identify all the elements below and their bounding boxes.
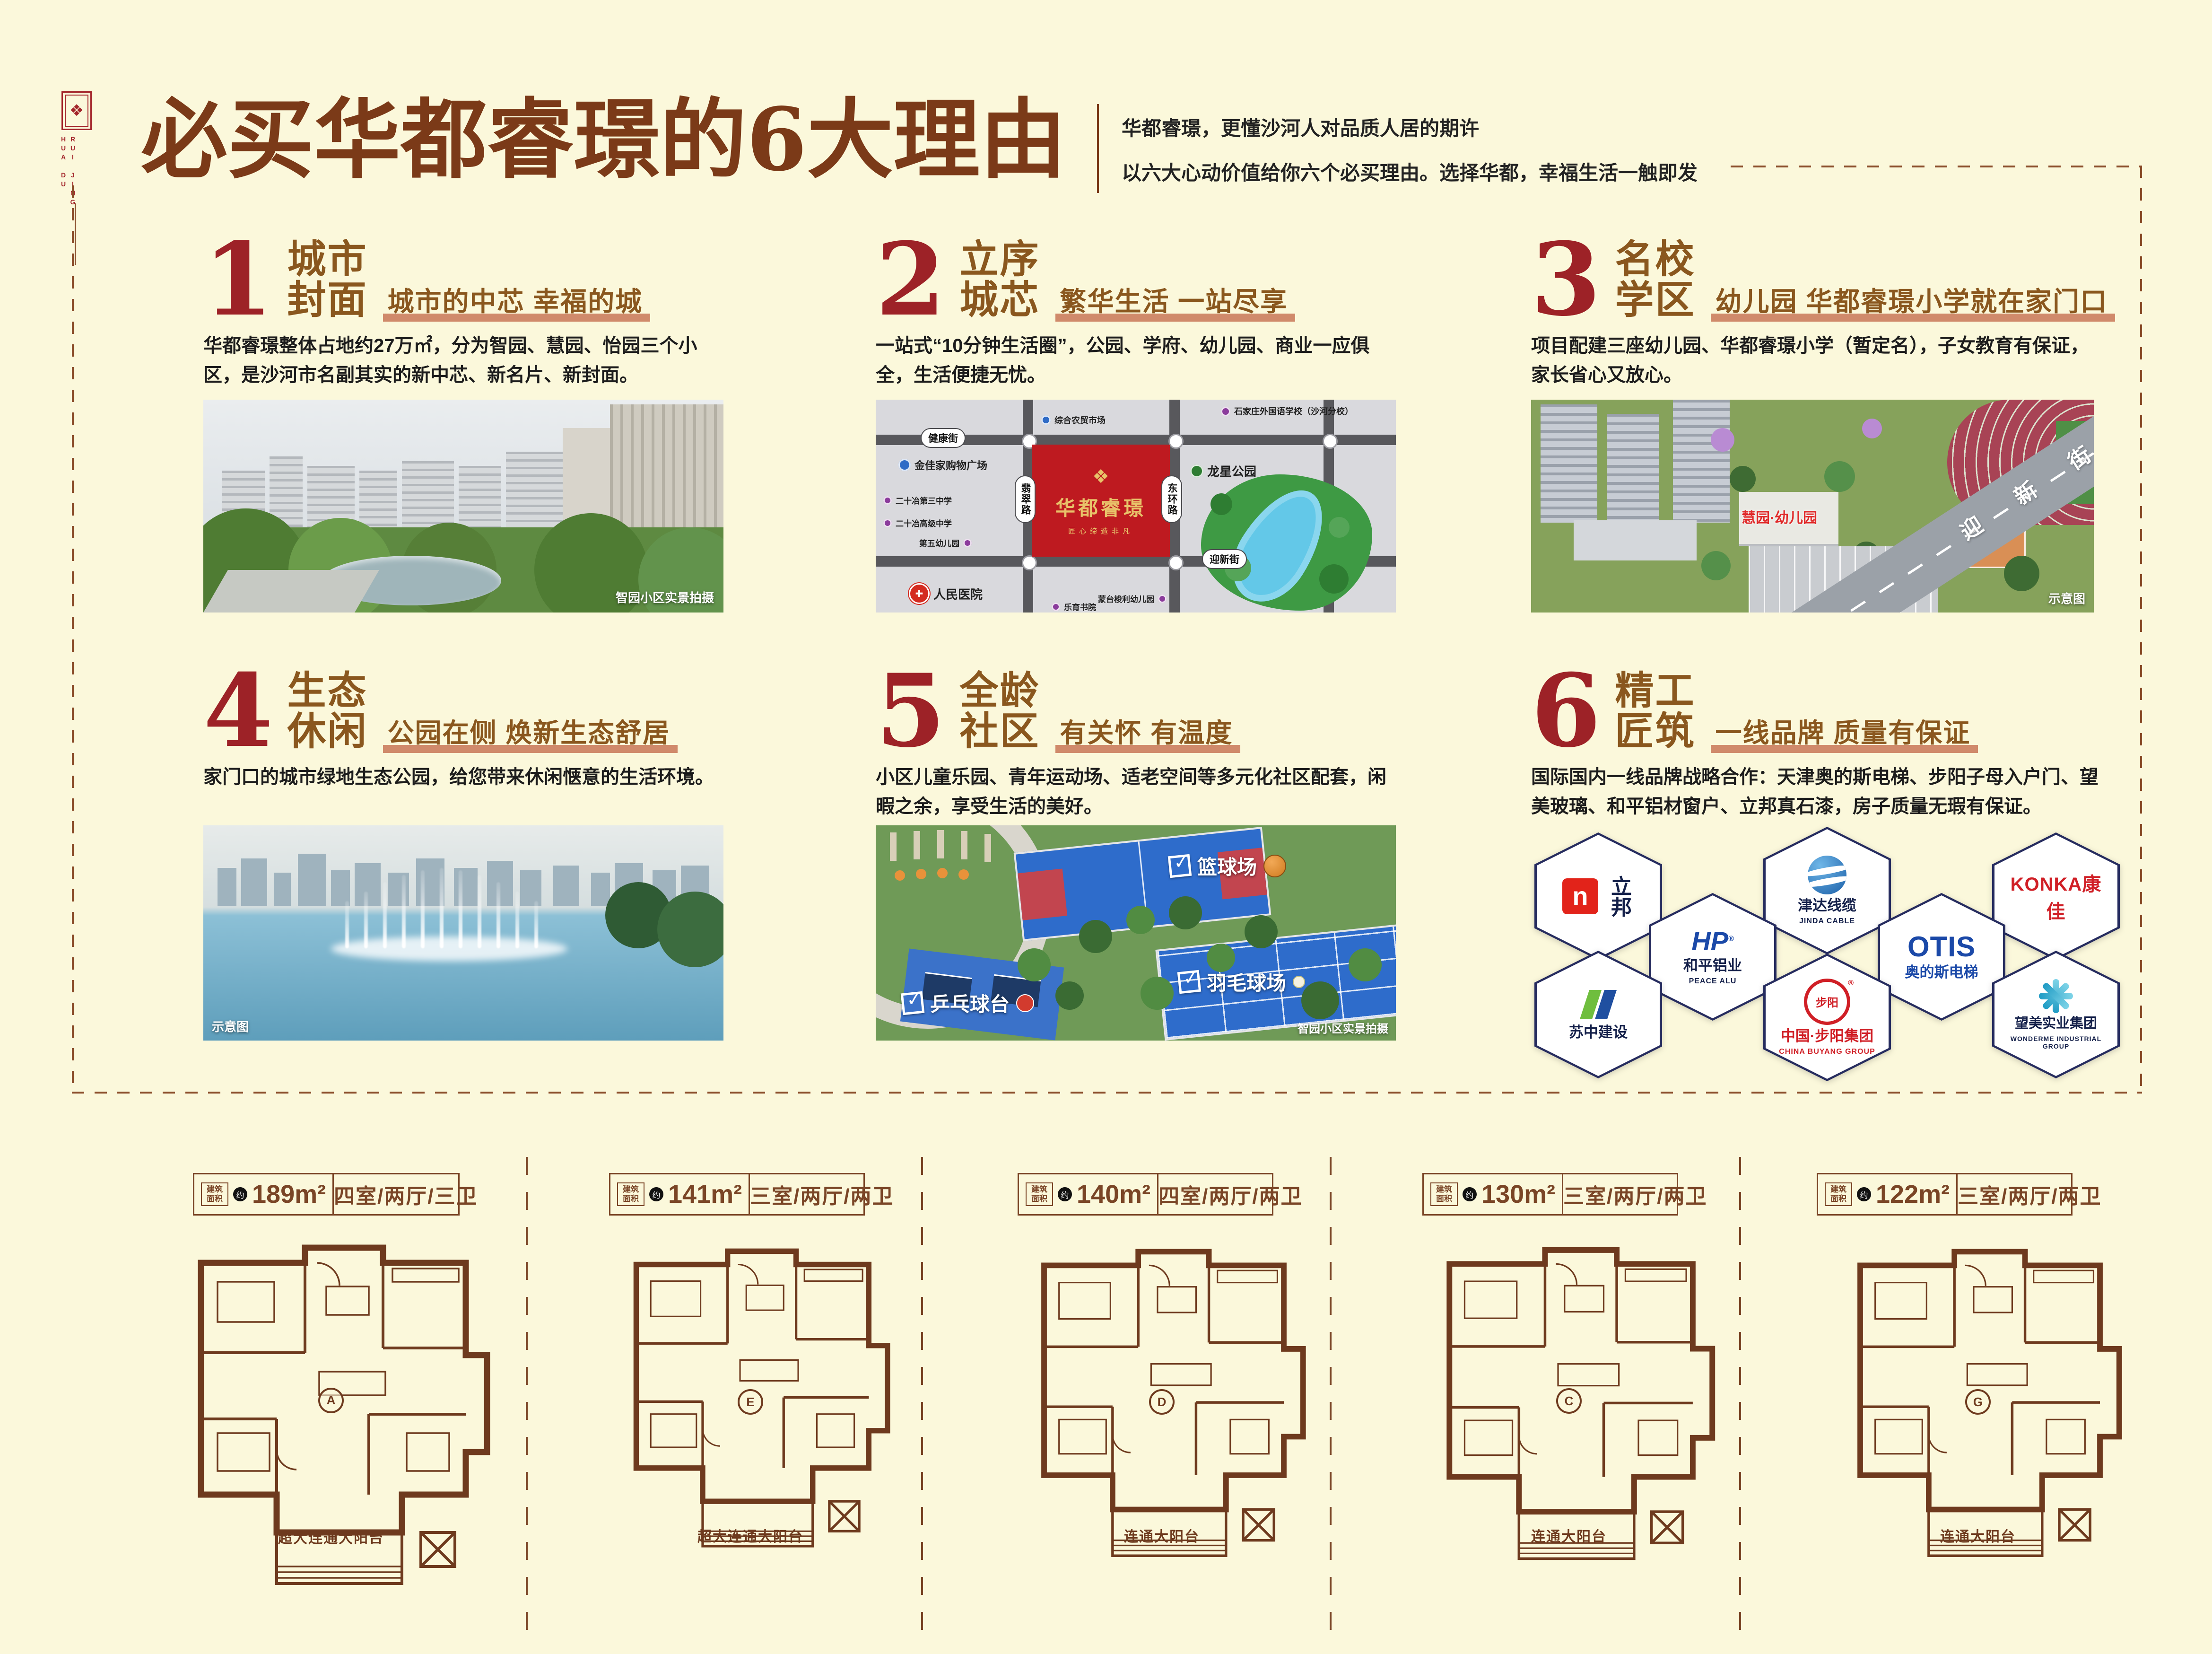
check-icon: ✓ xyxy=(901,991,925,1015)
floor-plan-4: C 连通大阳台 xyxy=(1408,1234,1730,1614)
sports-courts-image: ✓ 篮球场 ✓ 羽毛球场 ✓ 乒乓球台 智园小区实景拍摄 xyxy=(876,825,1396,1041)
poi-academy: 乐育书院 xyxy=(1052,601,1096,613)
plan-separator-1 xyxy=(526,1157,528,1634)
park-image-caption: 示意图 xyxy=(212,1017,249,1035)
section-1-tagline: 城市的中芯 幸福的城 xyxy=(386,280,645,321)
poi-hospital: ✚ 人民医院 xyxy=(909,583,983,604)
poi-shopping: 金佳家购物广场 xyxy=(898,457,987,473)
section-6-tagline: 一线品牌 质量有保证 xyxy=(1714,712,1973,752)
section-5-number: 5 xyxy=(876,670,946,752)
basketball-tag: ✓ 篮球场 xyxy=(1169,851,1286,880)
kindergarten-icon xyxy=(1158,595,1167,603)
hospital-cross-icon: ✚ xyxy=(909,583,930,604)
poi-middle-school-3: 二十冶第三中学 xyxy=(883,494,952,506)
school-icon xyxy=(1221,407,1230,416)
park-shape xyxy=(1201,474,1372,611)
brand-seal-icon: ❖ xyxy=(61,91,92,130)
brand-wonderme: 望美实业集团 WONDERME INDUSTRIAL GROUP xyxy=(1992,951,2120,1078)
brand-nippon: n 立邦 xyxy=(1534,832,1662,960)
plan-3-label: 建筑面积 约 140m² 四室/两厅/两卫 xyxy=(1018,1173,1273,1216)
section-5-body: 小区儿童乐园、青年运动场、适老空间等多元化社区配套，闲暇之余，享受生活的美好。 xyxy=(876,762,1398,821)
plan-5-label: 建筑面积 约 122m² 三室/两厅/两卫 xyxy=(1817,1173,2073,1216)
section-5-tagline: 有关怀 有温度 xyxy=(1058,712,1235,752)
plan-4-label: 建筑面积 约 130m² 三室/两厅/两卫 xyxy=(1422,1173,1678,1216)
shuttlecock-icon xyxy=(1293,976,1305,988)
poi-park: 龙星公园 xyxy=(1190,462,1256,480)
street-label-south: 迎新街 xyxy=(1202,549,1247,569)
lake-shape xyxy=(1217,474,1342,613)
plan-4-unit-letter: C xyxy=(1556,1388,1582,1414)
community-photo: 智园小区实景拍摄 xyxy=(203,400,723,613)
check-icon: ✓ xyxy=(1177,970,1202,994)
section-4-tagline: 公园在侧 焕新生态舒居 xyxy=(386,712,672,752)
plan-1-balcony-label: 超大连通大阳台 xyxy=(156,1526,506,1547)
section-6-body: 国际国内一线品牌战略合作：天津奥的斯电梯、步阳子母入户门、望美玻璃、和平铝材窗户… xyxy=(1531,762,2099,821)
section-6-number: 6 xyxy=(1531,670,1601,752)
section-2-body: 一站式“10分钟生活圈”，公园、学府、幼儿园、商业一应俱全，生活便捷无忧。 xyxy=(876,331,1398,390)
poster: { "icons": {"check": "✓", "reg": "®", "c… xyxy=(0,0,2212,1654)
badminton-tag: ✓ 羽毛球场 xyxy=(1178,967,1305,996)
project-block: ❖ 华都睿璟 匠心缔造非凡 xyxy=(1032,445,1170,557)
plan-3-unit-letter: D xyxy=(1149,1389,1175,1415)
street-label-west: 翡翠路 xyxy=(1015,475,1036,523)
poi-montessori: 蒙台梭利幼儿园 xyxy=(1098,593,1167,604)
pingpong-tag: ✓ 乒乓球台 xyxy=(902,989,1034,1017)
school-icon xyxy=(883,496,892,505)
plan-4-balcony-label: 连通大阳台 xyxy=(1408,1525,1730,1546)
header-divider xyxy=(1097,104,1099,193)
poi-foreign-school: 石家庄外国语学校（沙河分校） xyxy=(1221,406,1363,417)
poi-market: 综合农贸市场 xyxy=(1041,414,1106,426)
section-6-title: 精工 匠筑 xyxy=(1615,671,1696,752)
floor-plan-1: A 超大连通大阳台 xyxy=(156,1230,506,1618)
section-1-header: 1 城市 封面 城市的中芯 幸福的城 xyxy=(203,226,644,321)
frame-dash-left xyxy=(72,185,74,1092)
floor-plan-3: D 连通大阳台 xyxy=(1003,1235,1320,1614)
street-label-north: 健康街 xyxy=(921,428,966,448)
floor-plan-1-drawing xyxy=(156,1230,506,1618)
section-2-header: 2 立序 城芯 繁华生活 一站尽享 xyxy=(876,226,1289,321)
kindergarten-icon xyxy=(963,539,972,547)
floor-plan-5: G 连通大阳台 xyxy=(1820,1235,2136,1614)
community-photo-caption: 智园小区实景拍摄 xyxy=(616,588,714,606)
header-subtitle-1: 华都睿璟，更懂沙河人对品质人居的期许 xyxy=(1122,113,1784,141)
plan-5-unit-letter: G xyxy=(1965,1389,1991,1415)
brand-konka: KONKA康佳 xyxy=(1992,832,2120,960)
section-6-header: 6 精工 匠筑 一线品牌 质量有保证 xyxy=(1531,657,1972,752)
section-5-title: 全龄 社区 xyxy=(960,671,1040,752)
brand-suzhong: 苏中建设 xyxy=(1534,951,1662,1078)
brand-logos: n 立邦 津达线缆 JINDA CABLE KONKA康佳 HP® 和平铝业 P… xyxy=(1532,827,2120,1082)
project-name: 华都睿璟 xyxy=(1055,492,1146,521)
section-1-body: 华都睿璟整体占地约27万㎡，分为智园、慧园、怡园三个小区，是沙河市名副其实的新中… xyxy=(203,331,726,390)
plan-1-label: 建筑面积 约 189m² 四室/两厅/三卫 xyxy=(193,1173,460,1216)
frame-dash-bottom xyxy=(72,1092,2142,1094)
school-icon xyxy=(883,519,892,527)
paddle-icon xyxy=(1016,994,1034,1012)
poi-kindergarten-5: 第五幼儿园 xyxy=(919,537,972,549)
section-4-title: 生态 休闲 xyxy=(287,671,368,752)
poi-high-school: 二十冶高级中学 xyxy=(883,517,952,529)
section-1-number: 1 xyxy=(203,238,273,321)
page-title: 必买华都睿璟的6大理由 xyxy=(141,95,1101,185)
plan-separator-3 xyxy=(1330,1157,1332,1634)
school-image-caption: 示意图 xyxy=(2048,589,2085,607)
project-slogan: 匠心缔造非凡 xyxy=(1068,526,1133,536)
brand-otis: OTIS 奥的斯电梯 xyxy=(1878,893,2005,1021)
section-1-title: 城市 封面 xyxy=(287,239,368,321)
park-icon xyxy=(1190,464,1203,478)
section-4-header: 4 生态 休闲 公园在侧 焕新生态舒居 xyxy=(203,657,672,752)
floor-plan-2: E 超大连通大阳台 xyxy=(597,1235,904,1614)
section-2-number: 2 xyxy=(876,238,946,321)
basketball-icon xyxy=(1263,855,1286,877)
shopping-icon xyxy=(898,459,911,471)
brand-buyang: 步阳® 中国·步阳集团 CHINA BUYANG GROUP xyxy=(1763,954,1891,1081)
brand-logo-text-top: HUA DU xyxy=(60,135,67,207)
plan-3-balcony-label: 连通大阳台 xyxy=(1003,1525,1320,1546)
section-3-title: 名校 学区 xyxy=(1615,239,1696,321)
plan-separator-4 xyxy=(1739,1157,1741,1634)
header-subtitle-2: 以六大心动价值给你六个必买理由。选择华都，幸福生活一触即发 xyxy=(1122,157,1784,186)
peace-alu-logo-icon: HP® xyxy=(1691,928,1734,954)
plan-5-balcony-label: 连通大阳台 xyxy=(1820,1525,2136,1546)
location-map: ❖ 华都睿璟 匠心缔造非凡 健康街 迎新街 翡翠路 东环路 综合农贸市场 石家庄… xyxy=(876,400,1396,613)
section-2-tagline: 繁华生活 一站尽享 xyxy=(1058,280,1290,321)
plan-2-label: 建筑面积 约 141m² 三室/两厅/两卫 xyxy=(609,1173,865,1216)
academy-icon xyxy=(1052,603,1060,611)
brand-jinda: 津达线缆 JINDA CABLE xyxy=(1763,827,1891,954)
project-emblem-icon: ❖ xyxy=(1092,466,1109,488)
kindergarten-building-label: 慧园·幼儿园 xyxy=(1742,506,1817,527)
plan-separator-2 xyxy=(921,1157,923,1634)
jinda-logo-icon xyxy=(1808,856,1846,894)
check-icon: ✓ xyxy=(1168,854,1192,878)
sports-image-caption: 智园小区实景拍摄 xyxy=(1298,1019,1388,1036)
section-3-header: 3 名校 学区 幼儿园 华都睿璟小学就在家门口 xyxy=(1531,226,2109,321)
street-label-east: 东环路 xyxy=(1161,475,1182,523)
school-aerial-image: 迎新街 慧园·幼儿园 示意图 xyxy=(1531,400,2094,613)
section-3-tagline: 幼儿园 华都睿璟小学就在家门口 xyxy=(1714,280,2110,321)
section-3-body: 项目配建三座幼儿园、华都睿璟小学（暂定名），子女教育有保证，家长省心又放心。 xyxy=(1531,331,2094,390)
nippon-logo-icon: n xyxy=(1562,878,1598,914)
logo-divider xyxy=(75,203,76,265)
plan-1-unit-letter: A xyxy=(318,1388,344,1413)
section-5-header: 5 全龄 社区 有关怀 有温度 xyxy=(876,657,1235,752)
suzhong-logo-icon xyxy=(1581,988,1616,1021)
plan-2-balcony-label: 超大连通大阳台 xyxy=(597,1525,904,1546)
brand-peace-alu: HP® 和平铝业 PEACE ALU xyxy=(1649,893,1777,1021)
section-2-title: 立序 城芯 xyxy=(960,239,1040,321)
park-lake-image: 示意图 xyxy=(203,825,723,1041)
buyang-logo-icon: 步阳® xyxy=(1804,979,1850,1025)
frame-dash-right xyxy=(2140,166,2142,1093)
wonderme-logo-icon xyxy=(2039,979,2073,1013)
section-4-number: 4 xyxy=(203,670,273,752)
frame-dash-top xyxy=(1731,166,2141,167)
section-3-number: 3 xyxy=(1531,238,1601,321)
section-4-body: 家门口的城市绿地生态公园，给您带来休闲惬意的生活环境。 xyxy=(203,762,726,792)
market-icon xyxy=(1041,415,1051,425)
plan-2-unit-letter: E xyxy=(738,1389,763,1415)
brand-logo-text: HUA DU RUI JING xyxy=(60,135,77,207)
